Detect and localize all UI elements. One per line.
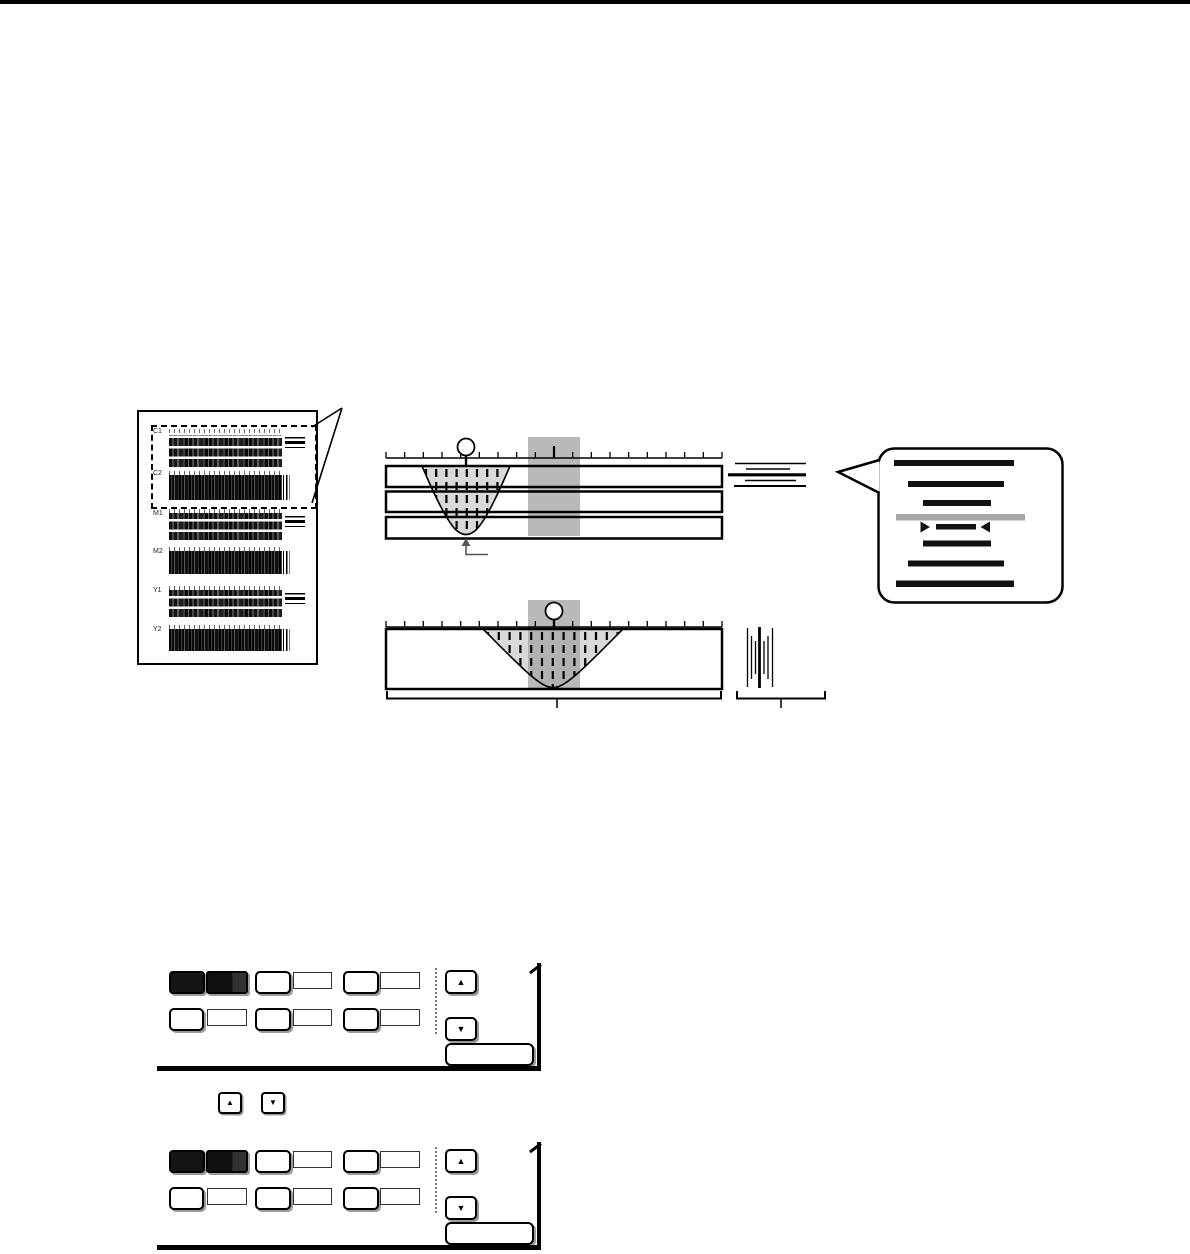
panel-value-field [293, 1009, 332, 1026]
width-bracket [737, 691, 825, 708]
vertical-lines-icon [283, 475, 290, 500]
position-marker-circle [458, 439, 475, 456]
vertical-lines-group [748, 627, 773, 688]
highlighted-value-line [896, 514, 1025, 521]
panel-wide-key [445, 1043, 534, 1066]
band-label: C1 [153, 428, 167, 435]
panel-value-field [380, 972, 420, 989]
position-marker-circle [546, 603, 563, 620]
panel-value-field [207, 1188, 247, 1205]
band-label: M2 [153, 548, 167, 555]
density-scale-icon [285, 593, 305, 604]
up-arrow-key: ▲ [445, 1149, 477, 1173]
panel-key-selected [169, 971, 205, 994]
down-arrow-key: ▼ [445, 1017, 477, 1041]
panel-bottom-edge [157, 1245, 541, 1250]
scale-numbers-strip [169, 429, 282, 433]
panel-value-field [293, 1151, 332, 1168]
panel-key [169, 1187, 204, 1210]
panel-divider [435, 1147, 437, 1213]
test-pattern-band [169, 435, 282, 467]
panel-key [343, 1187, 379, 1210]
panel-key-dark [206, 1150, 248, 1173]
vertical-lines-icon [283, 551, 290, 574]
down-arrow-icon: ▼ [457, 1204, 466, 1213]
up-arrow-icon: ▲ [457, 978, 466, 987]
pointer-arrow [462, 538, 489, 555]
manual-page: { "page": { "background": "#ffffff", "to… [0, 0, 1190, 1254]
zoom-wedge-lines [300, 400, 350, 510]
panel-key [255, 1187, 291, 1210]
line-pattern-sample [736, 620, 836, 715]
panel-key-selected [169, 1150, 205, 1173]
band-label: C2 [153, 470, 167, 477]
instruction-callout [830, 440, 1070, 612]
callout-tail [838, 460, 880, 493]
panel-value-field [380, 1188, 420, 1205]
panel-divider [435, 968, 437, 1034]
panel-bottom-edge [157, 1066, 541, 1071]
up-arrow-icon: ▲ [457, 1157, 466, 1166]
panel-value-field [293, 972, 332, 989]
test-print-sample-figure: C1 C2 M1 M2 Y1 Y2 [137, 410, 318, 665]
panel-value-field [380, 1151, 420, 1168]
panel-key [255, 971, 291, 994]
test-pattern-band [169, 551, 282, 574]
test-pattern-band [169, 475, 282, 500]
touch-panel-illustration-bottom: ▲ ▼ [155, 1139, 547, 1253]
panel-key [255, 1008, 291, 1031]
up-arrow-icon: ▲ [226, 1099, 234, 1107]
panel-wide-key [445, 1222, 534, 1245]
panel-value-field [380, 1009, 420, 1026]
vertical-lines-icon [283, 629, 290, 651]
inline-up-arrow-key: ▲ [218, 1092, 242, 1114]
down-arrow-key: ▼ [445, 1196, 477, 1220]
panel-key [169, 1008, 204, 1031]
panel-right-edge [537, 1142, 542, 1250]
panel-right-edge [537, 963, 542, 1071]
band-label: Y1 [153, 587, 167, 594]
density-scale-icon [285, 516, 305, 527]
ruler-scale [386, 446, 722, 458]
density-adjust-diagram-1 [380, 430, 840, 575]
width-bracket [387, 691, 721, 708]
panel-key [343, 971, 379, 994]
test-pattern-band [169, 513, 282, 540]
panel-value-field [293, 1188, 332, 1205]
panel-value-field [207, 1009, 247, 1026]
selected-value-bar [936, 524, 976, 530]
down-arrow-icon: ▼ [269, 1099, 277, 1107]
test-pattern-band [169, 629, 282, 651]
inline-down-arrow-key: ▼ [261, 1092, 285, 1114]
band-label: M1 [153, 510, 167, 517]
panel-key [255, 1150, 291, 1173]
band-label: Y2 [153, 626, 167, 633]
reference-text-lines [728, 464, 806, 487]
down-arrow-icon: ▼ [457, 1025, 466, 1034]
test-pattern-band [169, 590, 282, 617]
page-top-edge-bar [0, 0, 1190, 4]
panel-key [343, 1008, 379, 1031]
touch-panel-illustration-top: ▲ ▼ [155, 960, 547, 1074]
up-arrow-key: ▲ [445, 970, 477, 994]
panel-key [343, 1150, 379, 1173]
panel-key-dark [206, 971, 248, 994]
